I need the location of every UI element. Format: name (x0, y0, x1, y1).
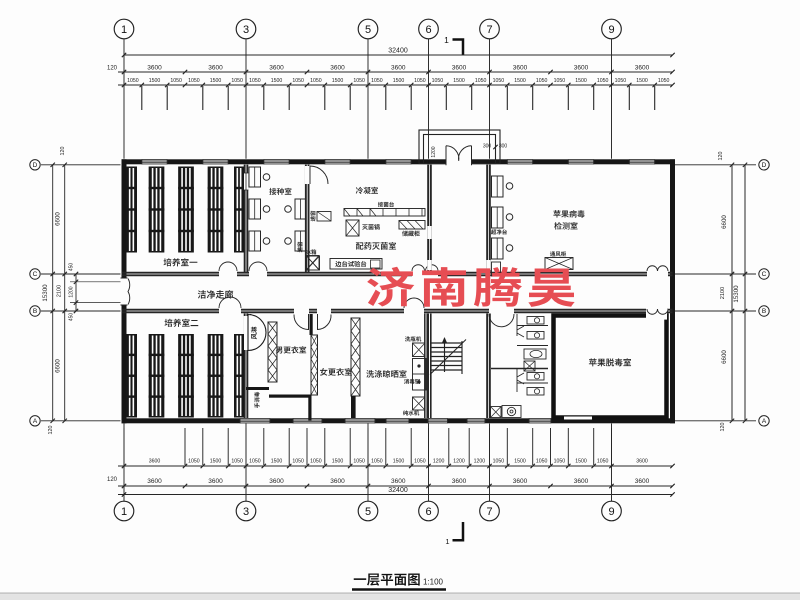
svg-text:3: 3 (243, 506, 249, 518)
svg-text:C: C (33, 271, 38, 278)
svg-text:D: D (33, 162, 38, 169)
svg-text:1:100: 1:100 (423, 578, 444, 587)
svg-text:1050: 1050 (493, 78, 505, 84)
svg-text:1050: 1050 (231, 459, 243, 465)
svg-text:1050: 1050 (371, 78, 383, 84)
svg-text:3600: 3600 (574, 478, 589, 485)
svg-text:2100: 2100 (720, 287, 726, 299)
svg-text:3600: 3600 (452, 65, 467, 72)
svg-text:300: 300 (499, 144, 508, 150)
svg-text:120: 120 (107, 477, 118, 483)
svg-text:1050: 1050 (615, 78, 627, 84)
svg-text:1050: 1050 (249, 78, 261, 84)
svg-text:1500: 1500 (332, 459, 344, 465)
svg-text:1200: 1200 (69, 286, 75, 297)
svg-text:1050: 1050 (371, 459, 383, 465)
svg-text:1050: 1050 (475, 78, 487, 84)
svg-text:1050: 1050 (310, 459, 322, 465)
svg-text:1500: 1500 (575, 78, 587, 84)
svg-text:6: 6 (425, 506, 431, 518)
svg-text:9: 9 (608, 24, 614, 36)
svg-text:1: 1 (121, 24, 127, 36)
svg-text:450: 450 (69, 313, 75, 322)
svg-text:1500: 1500 (393, 459, 405, 465)
svg-text:6: 6 (425, 24, 431, 36)
svg-text:B: B (33, 308, 37, 315)
svg-text:15300: 15300 (733, 285, 740, 303)
svg-text:1050: 1050 (188, 459, 200, 465)
svg-text:3600: 3600 (635, 65, 650, 72)
svg-text:1050: 1050 (127, 78, 139, 84)
svg-text:1050: 1050 (493, 459, 505, 465)
svg-text:1050: 1050 (292, 78, 304, 84)
svg-text:3600: 3600 (208, 478, 223, 485)
svg-text:3: 3 (243, 24, 249, 36)
svg-text:1050: 1050 (170, 78, 182, 84)
svg-text:1500: 1500 (210, 459, 222, 465)
svg-text:3600: 3600 (635, 478, 650, 485)
svg-text:120: 120 (60, 147, 66, 156)
svg-text:120: 120 (107, 66, 118, 72)
svg-text:1050: 1050 (292, 459, 304, 465)
svg-text:3600: 3600 (330, 65, 345, 72)
svg-text:1050: 1050 (554, 459, 566, 465)
svg-text:1050: 1050 (597, 78, 609, 84)
svg-text:1050: 1050 (432, 78, 444, 84)
svg-text:3600: 3600 (269, 65, 284, 72)
svg-text:3600: 3600 (636, 459, 648, 465)
svg-text:3600: 3600 (147, 65, 162, 72)
svg-text:1500: 1500 (149, 78, 161, 84)
svg-text:450: 450 (69, 263, 75, 272)
svg-text:1050: 1050 (414, 78, 426, 84)
svg-text:1050: 1050 (554, 78, 566, 84)
svg-text:6600: 6600 (721, 350, 728, 364)
svg-text:1500: 1500 (575, 459, 587, 465)
svg-text:6600: 6600 (55, 359, 62, 373)
svg-text:D: D (762, 162, 767, 169)
svg-text:1500: 1500 (636, 78, 648, 84)
svg-text:1050: 1050 (188, 78, 200, 84)
svg-text:1500: 1500 (453, 78, 465, 84)
svg-text:A: A (762, 418, 767, 425)
svg-text:1: 1 (444, 35, 449, 45)
svg-text:3600: 3600 (208, 65, 223, 72)
svg-text:1200: 1200 (431, 146, 437, 157)
svg-text:1050: 1050 (353, 78, 365, 84)
svg-text:7: 7 (486, 506, 492, 518)
svg-text:1500: 1500 (210, 78, 222, 84)
svg-text:1050: 1050 (353, 459, 365, 465)
svg-text:1: 1 (445, 537, 449, 546)
svg-text:1: 1 (121, 506, 127, 518)
svg-text:2100: 2100 (57, 285, 63, 297)
svg-text:1050: 1050 (249, 459, 261, 465)
svg-text:6600: 6600 (55, 212, 62, 226)
svg-text:120: 120 (48, 426, 54, 435)
svg-text:7: 7 (486, 24, 492, 36)
svg-text:3600: 3600 (391, 65, 406, 72)
svg-text:1050: 1050 (536, 459, 548, 465)
svg-text:3600: 3600 (147, 478, 162, 485)
svg-text:1050: 1050 (658, 78, 670, 84)
svg-text:1500: 1500 (393, 78, 405, 84)
svg-text:1200: 1200 (453, 459, 465, 465)
svg-text:6600: 6600 (721, 215, 728, 229)
svg-text:1500: 1500 (514, 78, 526, 84)
svg-text:3600: 3600 (574, 65, 589, 72)
svg-text:1200: 1200 (433, 459, 445, 465)
svg-text:32400: 32400 (388, 487, 408, 494)
svg-text:C: C (762, 271, 767, 278)
svg-text:1050: 1050 (310, 78, 322, 84)
svg-text:300: 300 (483, 144, 492, 150)
svg-text:3600: 3600 (149, 459, 161, 465)
svg-text:5: 5 (365, 506, 371, 518)
svg-text:1500: 1500 (514, 459, 526, 465)
svg-text:1200: 1200 (474, 459, 486, 465)
svg-text:B: B (762, 308, 766, 315)
svg-text:3600: 3600 (330, 478, 345, 485)
svg-text:9: 9 (608, 506, 614, 518)
svg-text:1500: 1500 (271, 78, 283, 84)
svg-text:3600: 3600 (269, 478, 284, 485)
svg-text:1050: 1050 (414, 459, 426, 465)
svg-text:A: A (33, 418, 38, 425)
svg-text:1500: 1500 (332, 78, 344, 84)
svg-text:120: 120 (718, 152, 724, 161)
svg-text:5: 5 (365, 24, 371, 36)
svg-text:1050: 1050 (231, 78, 243, 84)
svg-text:1050: 1050 (536, 78, 548, 84)
svg-text:3600: 3600 (513, 65, 528, 72)
svg-text:3600: 3600 (391, 478, 406, 485)
svg-text:15300: 15300 (42, 284, 49, 302)
svg-text:3600: 3600 (513, 478, 528, 485)
svg-text:1500: 1500 (271, 459, 283, 465)
svg-text:3600: 3600 (452, 478, 467, 485)
svg-text:1050: 1050 (597, 459, 609, 465)
svg-text:32400: 32400 (388, 48, 408, 55)
svg-text:120: 120 (720, 423, 726, 432)
